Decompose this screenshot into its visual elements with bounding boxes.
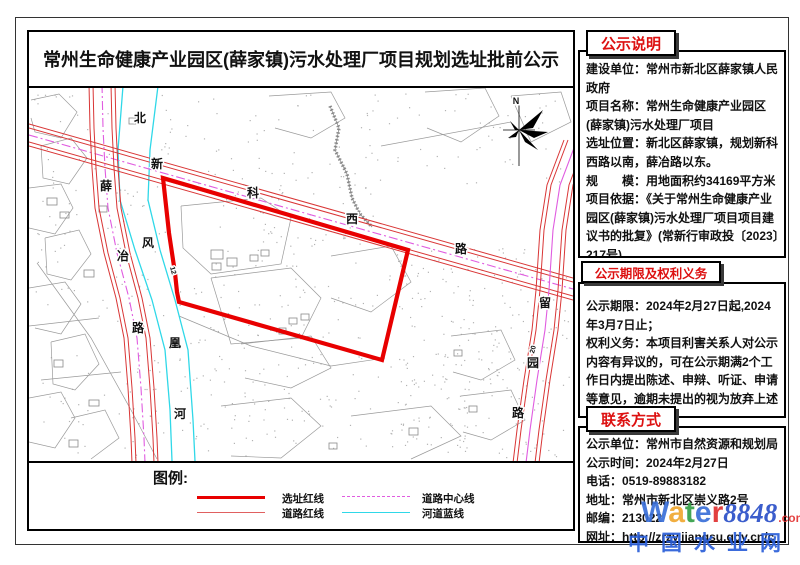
parcel-line (71, 410, 119, 459)
survey-dot (565, 310, 566, 311)
survey-dot (441, 389, 442, 390)
survey-dot (74, 290, 75, 291)
survey-dot (68, 288, 69, 289)
survey-dot (300, 297, 301, 298)
survey-dot (41, 249, 42, 250)
survey-dot (55, 251, 56, 252)
survey-dot (169, 147, 170, 148)
survey-dot (275, 437, 276, 438)
survey-dot (201, 292, 202, 293)
survey-dot (401, 424, 402, 425)
survey-dot (483, 379, 484, 380)
survey-dot (424, 340, 425, 341)
survey-dot (208, 450, 209, 451)
survey-dot (391, 366, 392, 367)
survey-dot (549, 332, 550, 333)
survey-dot (493, 345, 494, 346)
survey-dot (274, 430, 275, 431)
survey-dot (555, 101, 556, 102)
survey-dot (464, 438, 465, 439)
parcel-line (29, 318, 99, 326)
survey-dot (414, 384, 415, 385)
survey-dot (159, 233, 160, 234)
survey-dot (488, 136, 489, 137)
legend-line-site-redline (197, 496, 265, 499)
building-outline (47, 198, 57, 205)
survey-dot (47, 149, 48, 150)
survey-dot (419, 421, 420, 422)
survey-dot (233, 267, 234, 268)
survey-dot (541, 278, 542, 279)
survey-dot (430, 291, 431, 292)
survey-dot (290, 246, 291, 247)
survey-dot (563, 385, 564, 386)
survey-dot (99, 316, 100, 317)
survey-dot (158, 423, 159, 424)
survey-dot (154, 345, 155, 346)
survey-dot (265, 171, 266, 172)
survey-dot (45, 95, 46, 96)
survey-dot (493, 127, 494, 128)
survey-dot (87, 129, 88, 130)
survey-dot (452, 425, 453, 426)
survey-dot (210, 380, 211, 381)
survey-dot (72, 95, 73, 96)
survey-dot (154, 360, 155, 361)
survey-dot (268, 233, 269, 234)
survey-dot (465, 98, 466, 99)
survey-dot (414, 379, 415, 380)
survey-dot (61, 289, 62, 290)
map-label: 薛 (100, 178, 112, 193)
survey-dot (109, 154, 110, 155)
survey-dot (464, 401, 465, 402)
building-outline (60, 212, 69, 218)
map-label: 河 (173, 406, 186, 421)
survey-dot (412, 380, 413, 381)
survey-dot (287, 376, 288, 377)
survey-dot (438, 259, 439, 260)
survey-dot (557, 309, 558, 310)
survey-dot (231, 428, 232, 429)
survey-dot (252, 440, 253, 441)
survey-dot (322, 426, 323, 427)
survey-dot (83, 424, 84, 425)
survey-dot (507, 115, 508, 116)
survey-dot (276, 242, 277, 243)
survey-dot (63, 403, 64, 404)
survey-dot (530, 451, 531, 452)
survey-dot (155, 251, 156, 252)
survey-dot (466, 407, 467, 408)
building-outline (99, 206, 107, 212)
survey-dot (221, 359, 222, 360)
survey-dot (190, 343, 191, 344)
survey-dot (458, 156, 459, 157)
survey-dot (523, 321, 524, 322)
north-label: N (513, 96, 520, 106)
survey-dot (164, 146, 165, 147)
survey-dot (524, 249, 525, 250)
survey-dot (231, 158, 232, 159)
survey-dot (406, 385, 407, 386)
survey-dot (361, 358, 362, 359)
survey-dot (532, 397, 533, 398)
survey-dot (468, 94, 469, 95)
map-label: 路 (132, 320, 145, 335)
map-label: 路 (512, 405, 525, 420)
survey-dot (479, 359, 480, 360)
survey-dot (419, 115, 420, 116)
road-red-line-xueye-road (115, 88, 158, 461)
survey-dot (214, 368, 215, 369)
survey-dot (165, 143, 166, 144)
survey-dot (47, 304, 48, 305)
survey-dot (448, 452, 449, 453)
survey-dot (225, 317, 226, 318)
survey-dot (523, 253, 524, 254)
site-map: 北新科西路薛冶路风凰河留园路N2012 (29, 88, 573, 463)
survey-dot (445, 354, 446, 355)
survey-dot (196, 293, 197, 294)
survey-dot (65, 213, 66, 214)
survey-dot (107, 308, 108, 309)
survey-dot (119, 413, 120, 414)
survey-dot (133, 441, 134, 442)
survey-dot (117, 192, 118, 193)
survey-dot (491, 333, 492, 334)
survey-dot (502, 248, 503, 249)
survey-dot (492, 350, 493, 351)
survey-dot (69, 203, 70, 204)
survey-dot (216, 151, 217, 152)
survey-dot (295, 279, 296, 280)
survey-dot (502, 379, 503, 380)
survey-dot (104, 395, 105, 396)
survey-dot (392, 446, 393, 447)
survey-dot (296, 180, 297, 181)
survey-dot (107, 228, 108, 229)
survey-dot (296, 266, 297, 267)
survey-dot (64, 245, 65, 246)
survey-dot (373, 216, 374, 217)
survey-dot (42, 201, 43, 202)
survey-dot (560, 168, 561, 169)
survey-dot (313, 130, 314, 131)
notice-info-line: 项目依据：《关于常州生命健康产业园区(薛家镇)污水处理厂项目项目建议书的批复》(… (580, 190, 784, 258)
survey-dot (288, 305, 289, 306)
survey-dot (377, 159, 378, 160)
stream-hatched (330, 106, 372, 227)
survey-dot (365, 187, 366, 188)
survey-dot (328, 286, 329, 287)
survey-dot (410, 317, 411, 318)
survey-dot (542, 361, 543, 362)
survey-dot (293, 440, 294, 441)
map-label: 冶 (117, 248, 129, 263)
survey-dot (185, 136, 186, 137)
survey-dot (182, 430, 183, 431)
survey-dot (411, 265, 412, 266)
survey-dot (218, 149, 219, 150)
survey-dot (473, 322, 474, 323)
survey-dot (149, 305, 150, 306)
survey-dot (369, 145, 370, 146)
survey-dot (401, 260, 402, 261)
survey-dot (438, 353, 439, 354)
parcel-line (29, 392, 75, 448)
survey-dot (405, 445, 406, 446)
survey-dot (406, 283, 407, 284)
legend-line-road-centerline (342, 496, 410, 497)
survey-dot (263, 369, 264, 370)
survey-dot (476, 149, 477, 150)
survey-dot (469, 300, 470, 301)
survey-dot (417, 276, 418, 277)
survey-dot (443, 365, 444, 366)
survey-dot (84, 446, 85, 447)
survey-dot (216, 370, 217, 371)
survey-dot (313, 193, 314, 194)
survey-dot (142, 206, 143, 207)
survey-dot (223, 285, 224, 286)
survey-dot (360, 244, 361, 245)
survey-dot (500, 127, 501, 128)
panel-header-notice-info: 公示说明 (586, 30, 676, 56)
survey-dot (56, 96, 57, 97)
survey-dot (350, 425, 351, 426)
survey-dot (60, 248, 61, 249)
contact-line: 邮编：213022 (580, 509, 784, 528)
survey-dot (312, 172, 313, 173)
survey-dot (378, 377, 379, 378)
survey-dot (284, 173, 285, 174)
survey-dot (372, 305, 373, 306)
survey-dot (310, 95, 311, 96)
survey-dot (367, 113, 368, 114)
survey-dot (303, 290, 304, 291)
survey-dot (272, 173, 273, 174)
survey-dot (168, 153, 169, 154)
survey-dot (459, 440, 460, 441)
survey-dot (496, 331, 497, 332)
survey-dot (338, 319, 339, 320)
survey-dot (437, 156, 438, 157)
survey-dot (203, 424, 204, 425)
survey-dot (162, 95, 163, 96)
survey-dot (187, 125, 188, 126)
survey-dot (481, 359, 482, 360)
survey-dot (198, 101, 199, 102)
contact-line: 电话：0519-89883182 (580, 472, 784, 491)
survey-dot (359, 338, 360, 339)
survey-dot (443, 334, 444, 335)
survey-dot (170, 132, 171, 133)
parcel-line (381, 122, 511, 146)
survey-dot (431, 444, 432, 445)
survey-dot (282, 193, 283, 194)
survey-dot (443, 269, 444, 270)
survey-dot (293, 254, 294, 255)
survey-dot (232, 403, 233, 404)
survey-dot (380, 180, 381, 181)
survey-dot (257, 133, 258, 134)
survey-dot (418, 418, 419, 419)
survey-dot (506, 457, 507, 458)
survey-dot (463, 441, 464, 442)
survey-dot (315, 240, 316, 241)
survey-dot (407, 368, 408, 369)
parcel-line (451, 330, 515, 380)
survey-dot (434, 385, 435, 386)
survey-dot (489, 369, 490, 370)
survey-dot (295, 443, 296, 444)
survey-dot (147, 279, 148, 280)
survey-dot (444, 381, 445, 382)
survey-dot (407, 363, 408, 364)
survey-dot (143, 205, 144, 206)
survey-dot (564, 320, 565, 321)
survey-dot (244, 393, 245, 394)
survey-dot (213, 99, 214, 100)
survey-dot (343, 203, 344, 204)
survey-dot (161, 149, 162, 150)
survey-dot (298, 368, 299, 369)
survey-dot (566, 338, 567, 339)
survey-dot (281, 236, 282, 237)
survey-dot (322, 240, 323, 241)
survey-dot (210, 327, 211, 328)
survey-dot (271, 233, 272, 234)
survey-dot (180, 305, 181, 306)
survey-dot (77, 115, 78, 116)
survey-dot (258, 250, 259, 251)
page-title: 常州生命健康产业园区(薛家镇)污水处理厂项目规划选址批前公示 (43, 46, 559, 72)
survey-dot (467, 427, 468, 428)
survey-dot (253, 382, 254, 383)
survey-dot (397, 161, 398, 162)
survey-dot (216, 263, 217, 264)
survey-dot (403, 359, 404, 360)
survey-dot (418, 386, 419, 387)
survey-dot (296, 286, 297, 287)
building-outline (250, 255, 258, 261)
survey-dot (163, 315, 164, 316)
survey-dot (492, 139, 493, 140)
survey-dot (406, 364, 407, 365)
map-label: 西 (346, 212, 358, 226)
period-rights-line: 公示期限：2024年2月27日起,2024年3月7日止； (580, 297, 784, 334)
survey-dot (328, 332, 329, 333)
survey-dot (185, 376, 186, 377)
survey-dot (208, 171, 209, 172)
survey-dot (431, 251, 432, 252)
survey-dot (270, 318, 271, 319)
survey-dot (130, 205, 131, 206)
survey-dot (479, 147, 480, 148)
survey-dot (287, 419, 288, 420)
planning-notice-page: 常州生命健康产业园区(薛家镇)污水处理厂项目规划选址批前公示 北新科西路薛冶路风… (0, 0, 800, 565)
survey-dot (279, 189, 280, 190)
survey-dot (331, 406, 332, 407)
survey-dot (264, 384, 265, 385)
survey-dot (488, 368, 489, 369)
survey-dot (460, 327, 461, 328)
survey-dot (480, 123, 481, 124)
survey-dot (226, 199, 227, 200)
survey-dot (145, 389, 146, 390)
survey-dot (61, 401, 62, 402)
survey-dot (418, 293, 419, 294)
survey-dot (473, 300, 474, 301)
legend-label: 选址红线 (282, 491, 324, 506)
survey-dot (370, 194, 371, 195)
survey-dot (372, 110, 373, 111)
survey-dot (223, 205, 224, 206)
survey-dot (465, 389, 466, 390)
survey-dot (525, 442, 526, 443)
survey-dot (264, 229, 265, 230)
legend-label: 道路中心线 (422, 491, 475, 506)
building-outline (69, 440, 78, 447)
survey-dot (355, 398, 356, 399)
survey-dot (495, 339, 496, 340)
survey-dot (219, 356, 220, 357)
survey-dot (87, 410, 88, 411)
survey-dot (378, 101, 379, 102)
survey-dot (265, 409, 266, 410)
survey-dot (43, 421, 44, 422)
survey-dot (229, 368, 230, 369)
building-outline (261, 250, 269, 256)
survey-dot (446, 379, 447, 380)
parcel-line (51, 334, 99, 390)
survey-dot (353, 374, 354, 375)
survey-dot (37, 233, 38, 234)
survey-dot (424, 381, 425, 382)
survey-dot (390, 275, 391, 276)
survey-dot (556, 456, 557, 457)
survey-dot (355, 263, 356, 264)
survey-dot (224, 381, 225, 382)
survey-dot (259, 304, 260, 305)
road-centerline-xinke-west-road (29, 135, 573, 289)
survey-dot (453, 322, 454, 323)
survey-dot (543, 347, 544, 348)
survey-dot (413, 356, 414, 357)
survey-dot (547, 347, 548, 348)
survey-dot (525, 116, 526, 117)
survey-dot (291, 325, 292, 326)
survey-dot (428, 272, 429, 273)
survey-dot (334, 301, 335, 302)
survey-dot (146, 389, 147, 390)
survey-dot (248, 325, 249, 326)
survey-dot (310, 238, 311, 239)
survey-dot (306, 95, 307, 96)
survey-dot (195, 438, 196, 439)
survey-dot (402, 308, 403, 309)
survey-dot (190, 422, 191, 423)
survey-dot (509, 351, 510, 352)
north-arrow-rose (510, 121, 519, 130)
map-label: 园 (527, 356, 539, 370)
survey-dot (205, 340, 206, 341)
survey-dot (180, 291, 181, 292)
survey-dot (355, 304, 356, 305)
road-red-line-xinke-west-road (29, 128, 573, 282)
survey-dot (399, 306, 400, 307)
